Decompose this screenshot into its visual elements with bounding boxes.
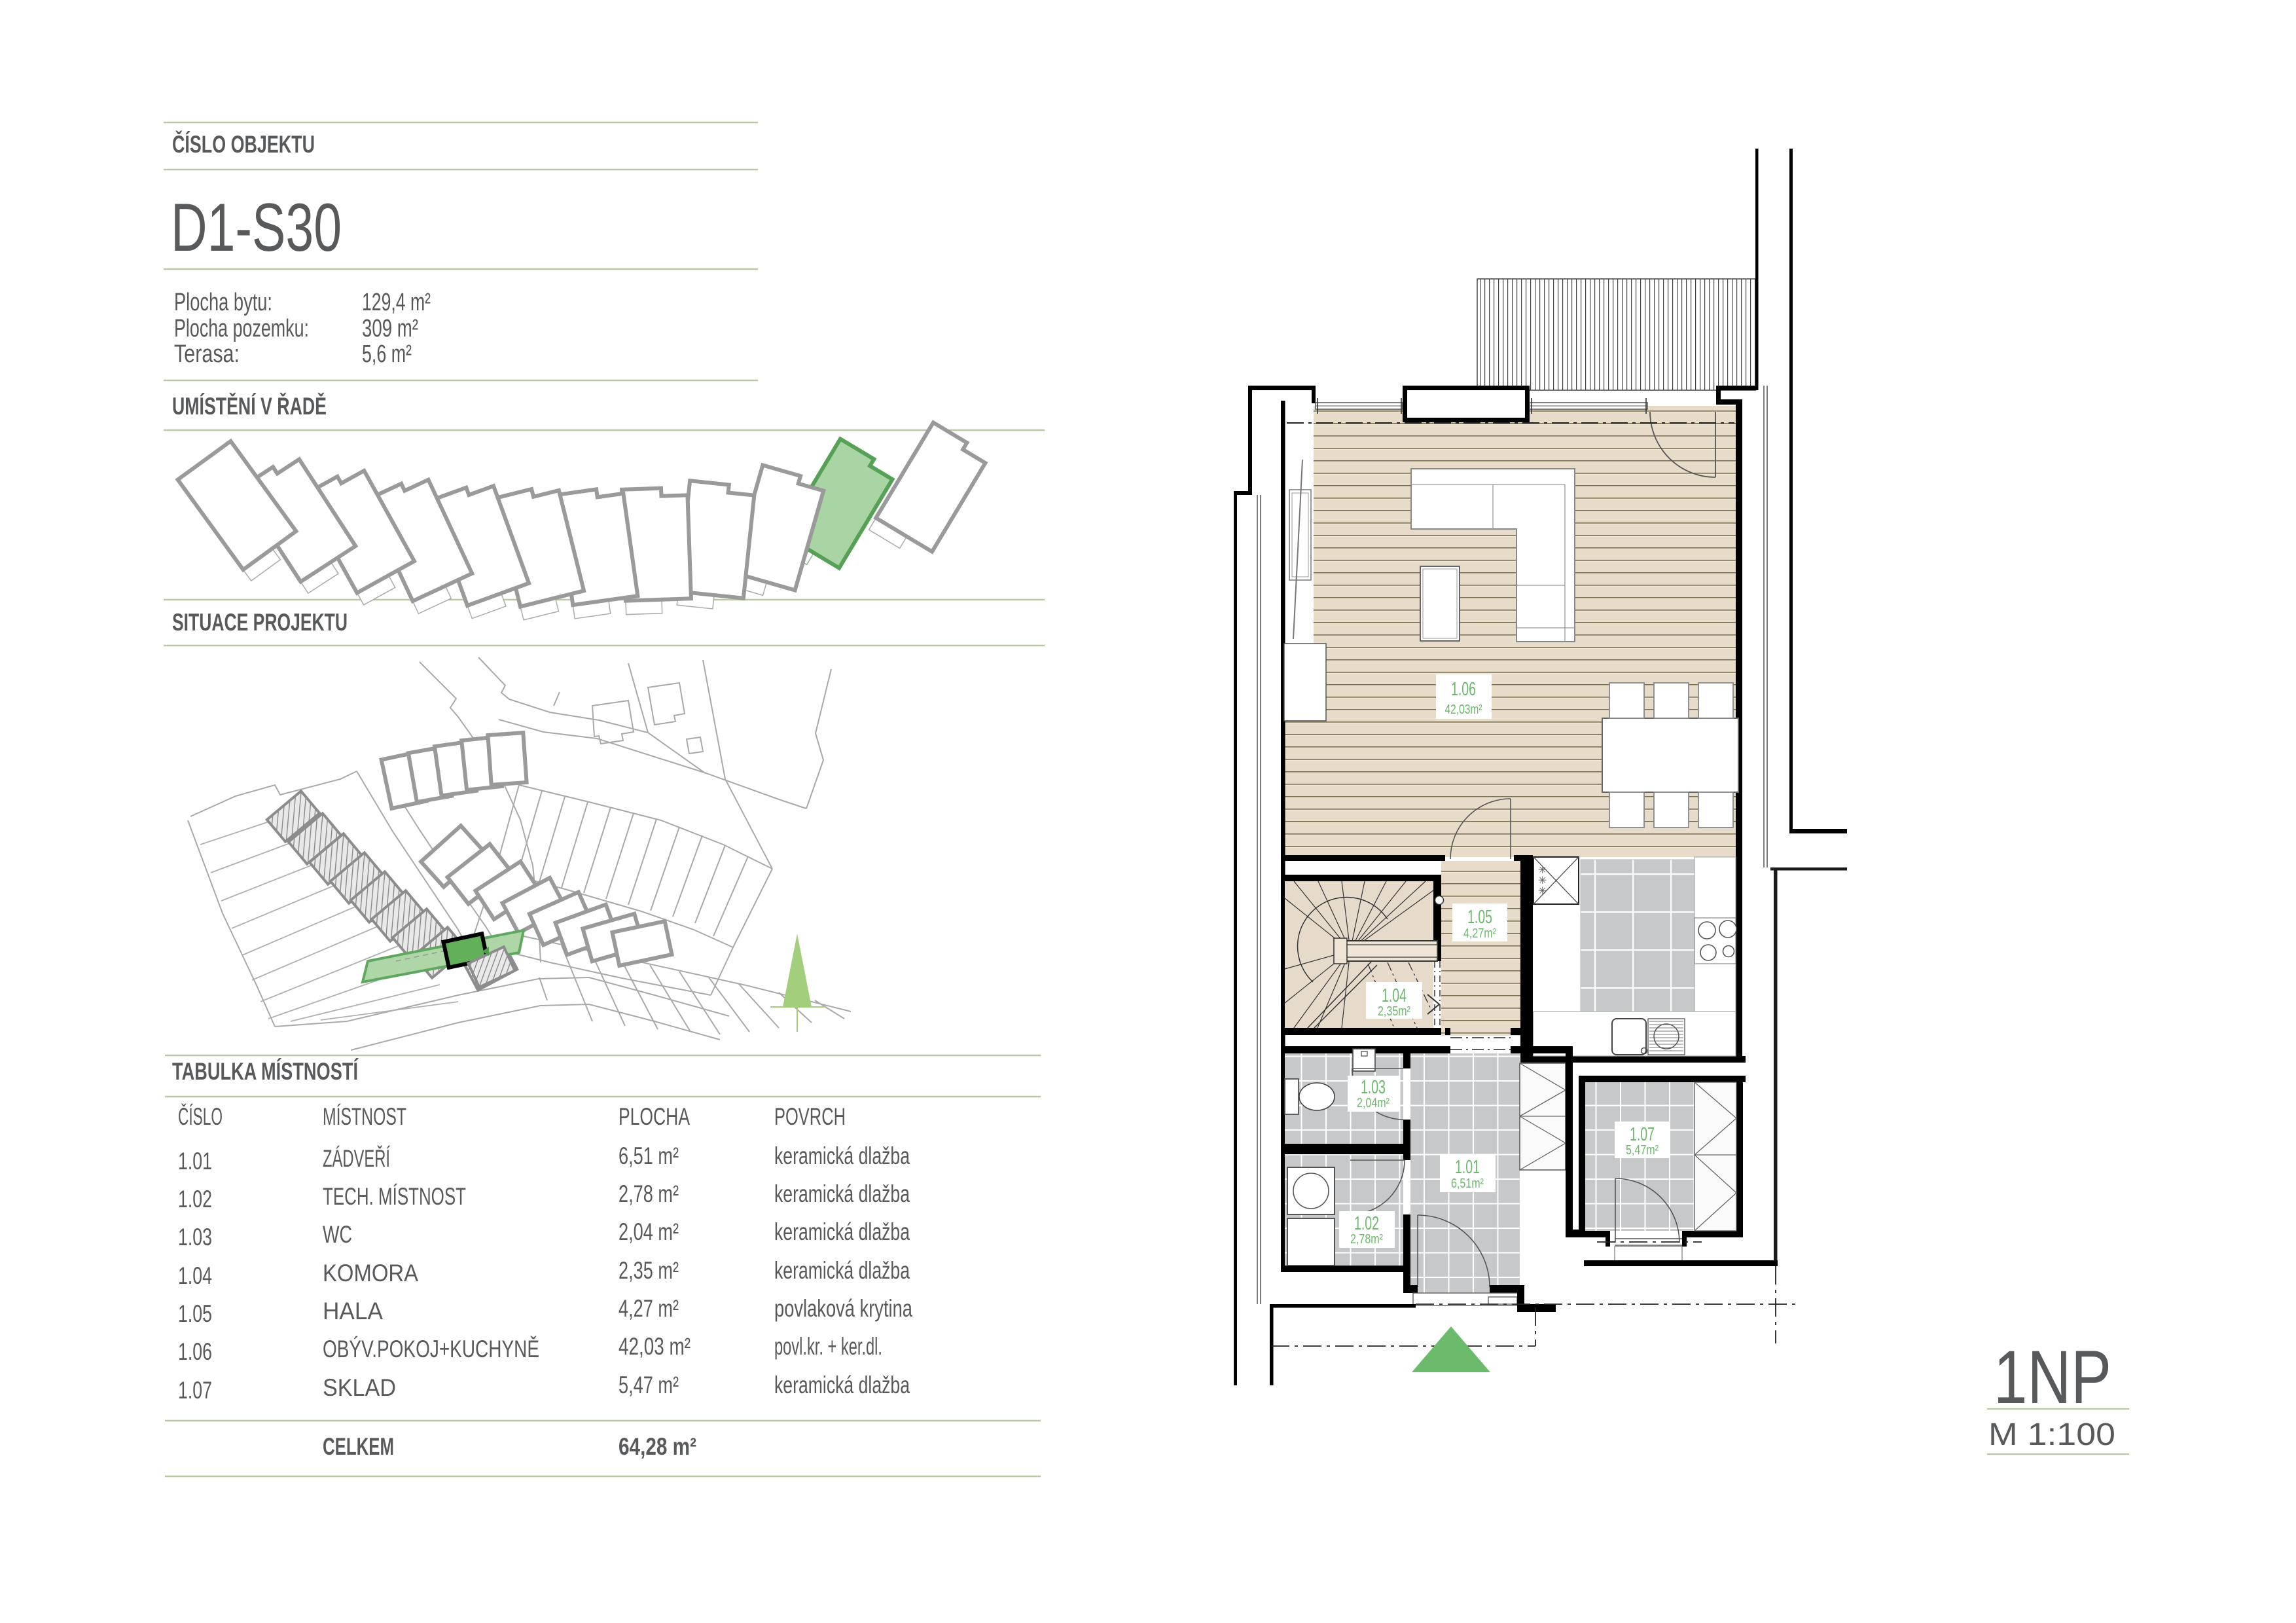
svg-text:ČÍSLO: ČÍSLO bbox=[178, 1103, 223, 1130]
svg-text:1.03: 1.03 bbox=[1361, 1077, 1386, 1098]
svg-text:1NP: 1NP bbox=[1994, 1336, 2111, 1419]
svg-text:1.07: 1.07 bbox=[178, 1377, 212, 1404]
svg-text:309 m²: 309 m² bbox=[362, 315, 418, 342]
svg-text:1.06: 1.06 bbox=[178, 1338, 212, 1365]
svg-text:POVRCH: POVRCH bbox=[774, 1103, 846, 1130]
svg-text:keramická dlažba: keramická dlažba bbox=[774, 1257, 910, 1284]
svg-text:2,35m²: 2,35m² bbox=[1378, 1004, 1410, 1019]
svg-text:SITUACE PROJEKTU: SITUACE PROJEKTU bbox=[172, 609, 348, 636]
svg-text:D1-S30: D1-S30 bbox=[171, 190, 342, 266]
svg-text:64,28 m²: 64,28 m² bbox=[619, 1433, 696, 1460]
svg-text:2,04 m²: 2,04 m² bbox=[619, 1218, 679, 1245]
svg-text:1.01: 1.01 bbox=[1455, 1157, 1480, 1178]
svg-text:keramická dlažba: keramická dlažba bbox=[774, 1180, 910, 1207]
svg-text:KOMORA: KOMORA bbox=[323, 1260, 418, 1286]
svg-text:ZÁDVEŘÍ: ZÁDVEŘÍ bbox=[323, 1145, 390, 1172]
svg-text:SKLAD: SKLAD bbox=[323, 1374, 396, 1401]
svg-text:1.04: 1.04 bbox=[178, 1262, 212, 1289]
svg-text:1.05: 1.05 bbox=[1467, 907, 1492, 928]
svg-text:5,47m²: 5,47m² bbox=[1626, 1143, 1659, 1158]
svg-text:UMÍSTĚNÍ V ŘADĚ: UMÍSTĚNÍ V ŘADĚ bbox=[172, 392, 327, 420]
svg-text:1.02: 1.02 bbox=[1354, 1213, 1379, 1234]
svg-text:keramická dlažba: keramická dlažba bbox=[774, 1372, 910, 1398]
svg-text:TABULKA MÍSTNOSTÍ: TABULKA MÍSTNOSTÍ bbox=[172, 1058, 359, 1085]
svg-text:42,03 m²: 42,03 m² bbox=[619, 1333, 691, 1360]
svg-text:WC: WC bbox=[323, 1221, 352, 1248]
svg-text:✳: ✳ bbox=[1538, 875, 1547, 886]
svg-text:povlaková krytina: povlaková krytina bbox=[774, 1295, 912, 1322]
svg-text:1.03: 1.03 bbox=[178, 1224, 212, 1250]
svg-text:keramická dlažba: keramická dlažba bbox=[774, 1142, 910, 1169]
svg-text:M 1:100: M 1:100 bbox=[1988, 1417, 2115, 1452]
svg-text:1.06: 1.06 bbox=[1451, 679, 1476, 700]
svg-text:OBÝV.POKOJ+KUCHYNĚ: OBÝV.POKOJ+KUCHYNĚ bbox=[323, 1336, 539, 1362]
svg-text:HALA: HALA bbox=[323, 1298, 383, 1324]
svg-text:PLOCHA: PLOCHA bbox=[619, 1103, 690, 1130]
svg-text:1.01: 1.01 bbox=[178, 1148, 212, 1175]
svg-text:ČÍSLO OBJEKTU: ČÍSLO OBJEKTU bbox=[172, 130, 315, 158]
svg-text:✳: ✳ bbox=[1538, 886, 1547, 897]
svg-text:1.07: 1.07 bbox=[1630, 1124, 1655, 1145]
svg-text:povl.kr. + ker.dl.: povl.kr. + ker.dl. bbox=[774, 1333, 882, 1360]
svg-text:2,78m²: 2,78m² bbox=[1350, 1232, 1383, 1247]
svg-text:2,35 m²: 2,35 m² bbox=[619, 1257, 679, 1284]
svg-text:CELKEM: CELKEM bbox=[323, 1433, 394, 1460]
svg-text:6,51 m²: 6,51 m² bbox=[619, 1142, 679, 1169]
svg-text:42,03m²: 42,03m² bbox=[1445, 702, 1482, 717]
svg-text:1.05: 1.05 bbox=[178, 1300, 212, 1327]
svg-text:Plocha bytu:: Plocha bytu: bbox=[174, 289, 272, 316]
svg-text:Terasa:: Terasa: bbox=[174, 340, 240, 368]
svg-text:2,78 m²: 2,78 m² bbox=[619, 1180, 679, 1207]
svg-text:5,47 m²: 5,47 m² bbox=[619, 1372, 679, 1398]
svg-text:4,27m²: 4,27m² bbox=[1463, 926, 1496, 941]
svg-text:6,51m²: 6,51m² bbox=[1451, 1176, 1484, 1191]
svg-text:1.04: 1.04 bbox=[1382, 985, 1407, 1006]
svg-text:TECH. MÍSTNOST: TECH. MÍSTNOST bbox=[323, 1183, 466, 1210]
svg-text:129,4 m²: 129,4 m² bbox=[362, 289, 431, 316]
svg-text:MÍSTNOST: MÍSTNOST bbox=[323, 1103, 406, 1130]
svg-text:5,6 m²: 5,6 m² bbox=[362, 340, 412, 368]
svg-text:4,27 m²: 4,27 m² bbox=[619, 1295, 679, 1322]
svg-text:Plocha pozemku:: Plocha pozemku: bbox=[174, 315, 309, 342]
svg-text:✳: ✳ bbox=[1538, 865, 1547, 876]
svg-text:2,04m²: 2,04m² bbox=[1357, 1096, 1390, 1110]
svg-text:keramická dlažba: keramická dlažba bbox=[774, 1218, 910, 1245]
svg-text:1.02: 1.02 bbox=[178, 1186, 212, 1213]
